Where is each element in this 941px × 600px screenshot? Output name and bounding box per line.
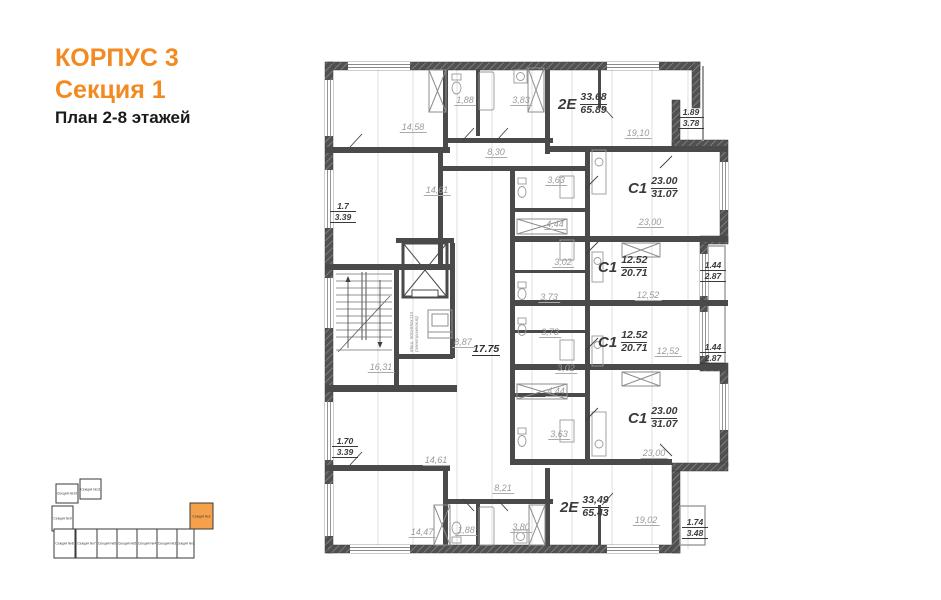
room-area-label: 1,88 [454, 95, 476, 106]
room-area-label: 14,61 [423, 455, 450, 466]
windows [325, 62, 728, 553]
room-area-label: 3,63 [548, 429, 570, 440]
svg-text:Секция №6: Секция №6 [98, 542, 117, 546]
room-area-label: 3,80 [510, 522, 532, 533]
svg-text:Секция №11: Секция №11 [80, 488, 100, 492]
room-area-label: 19,02 [633, 515, 660, 526]
apartment-label-c1-mid-lower: С1 12.5220.71 [598, 330, 647, 354]
room-area-label: 4,44 [544, 219, 566, 230]
apartment-label-2e-top: 2Е 33.6865.89 [558, 92, 607, 116]
building-title: КОРПУС 3 [55, 42, 190, 74]
room-area-label: 3,63 [545, 175, 567, 186]
room-area-label: 16,31 [368, 362, 395, 373]
apartment-label-2e-bottom: 2Е 33,4965.43 [560, 495, 609, 519]
corridor-area-label: 17.75 [472, 343, 500, 356]
balcony-label-right-upper: 1.442.87 [700, 260, 726, 282]
balcony-label-left-lower: 1.703.39 [332, 436, 358, 458]
room-area-label: 8,30 [485, 147, 507, 158]
room-area-label: 12,52 [655, 346, 682, 357]
room-area-label: 14,58 [400, 122, 427, 133]
room-area-label: 3,73 [538, 292, 560, 303]
room-area-label: 4,44 [545, 386, 567, 397]
room-area-label: 1,88 [455, 525, 477, 536]
room-area-label: 3,73 [539, 327, 561, 338]
svg-text:Секция №7: Секция №7 [77, 542, 96, 546]
elevator-machine-note: Маш. 900х950х110 (электрический) [409, 312, 419, 352]
svg-text:Секция №10: Секция №10 [57, 492, 78, 496]
apartment-label-c1-mid-upper: С1 12.5220.71 [598, 255, 647, 279]
room-area-label: 23,00 [637, 217, 664, 228]
svg-text:Секция №4: Секция №4 [138, 542, 157, 546]
svg-text:Секция №5: Секция №5 [118, 542, 137, 546]
balcony-label-right-lower: 1.442.87 [700, 342, 726, 364]
room-area-label: 3,83 [510, 95, 532, 106]
balcony-label-left-upper: 1.73.39 [330, 201, 356, 223]
room-area-label: 12,52 [635, 290, 662, 301]
svg-text:Секция №3: Секция №3 [158, 542, 177, 546]
balcony-label-top-right: 1.893.78 [678, 107, 704, 129]
floor-plan-page: { "title": { "building": "КОРПУС 3", "se… [0, 0, 941, 600]
room-area-label: 23,00 [641, 448, 668, 459]
room-area-label: 8,21 [492, 483, 514, 494]
room-area-label: 19,10 [625, 128, 652, 139]
staircase [336, 272, 392, 352]
svg-text:Секция №8: Секция №8 [55, 542, 74, 546]
title-block: КОРПУС 3 Секция 1 План 2-8 этажей [55, 42, 190, 130]
section-title: Секция 1 [55, 74, 190, 106]
svg-text:Секция №1: Секция №1 [192, 515, 211, 519]
plan-title: План 2-8 этажей [55, 106, 190, 130]
room-area-label: 3,02 [555, 363, 577, 374]
interior-walls [325, 70, 728, 546]
apartment-label-c1-bottom: С1 23.0031.07 [628, 406, 677, 430]
apartment-label-c1-top: С1 23.0031.07 [628, 176, 677, 200]
svg-text:Секция №2: Секция №2 [176, 542, 195, 546]
room-area-label: 14,47 [409, 527, 436, 538]
machine-icon [428, 310, 452, 338]
exterior-walls [325, 62, 728, 553]
room-area-label: 14,61 [424, 185, 451, 196]
room-area-label: 8,87 [452, 337, 474, 348]
balcony-label-bottom-right: 1.743.48 [682, 517, 708, 539]
room-area-label: 3,02 [552, 257, 574, 268]
svg-text:Секция №9: Секция №9 [53, 517, 72, 521]
